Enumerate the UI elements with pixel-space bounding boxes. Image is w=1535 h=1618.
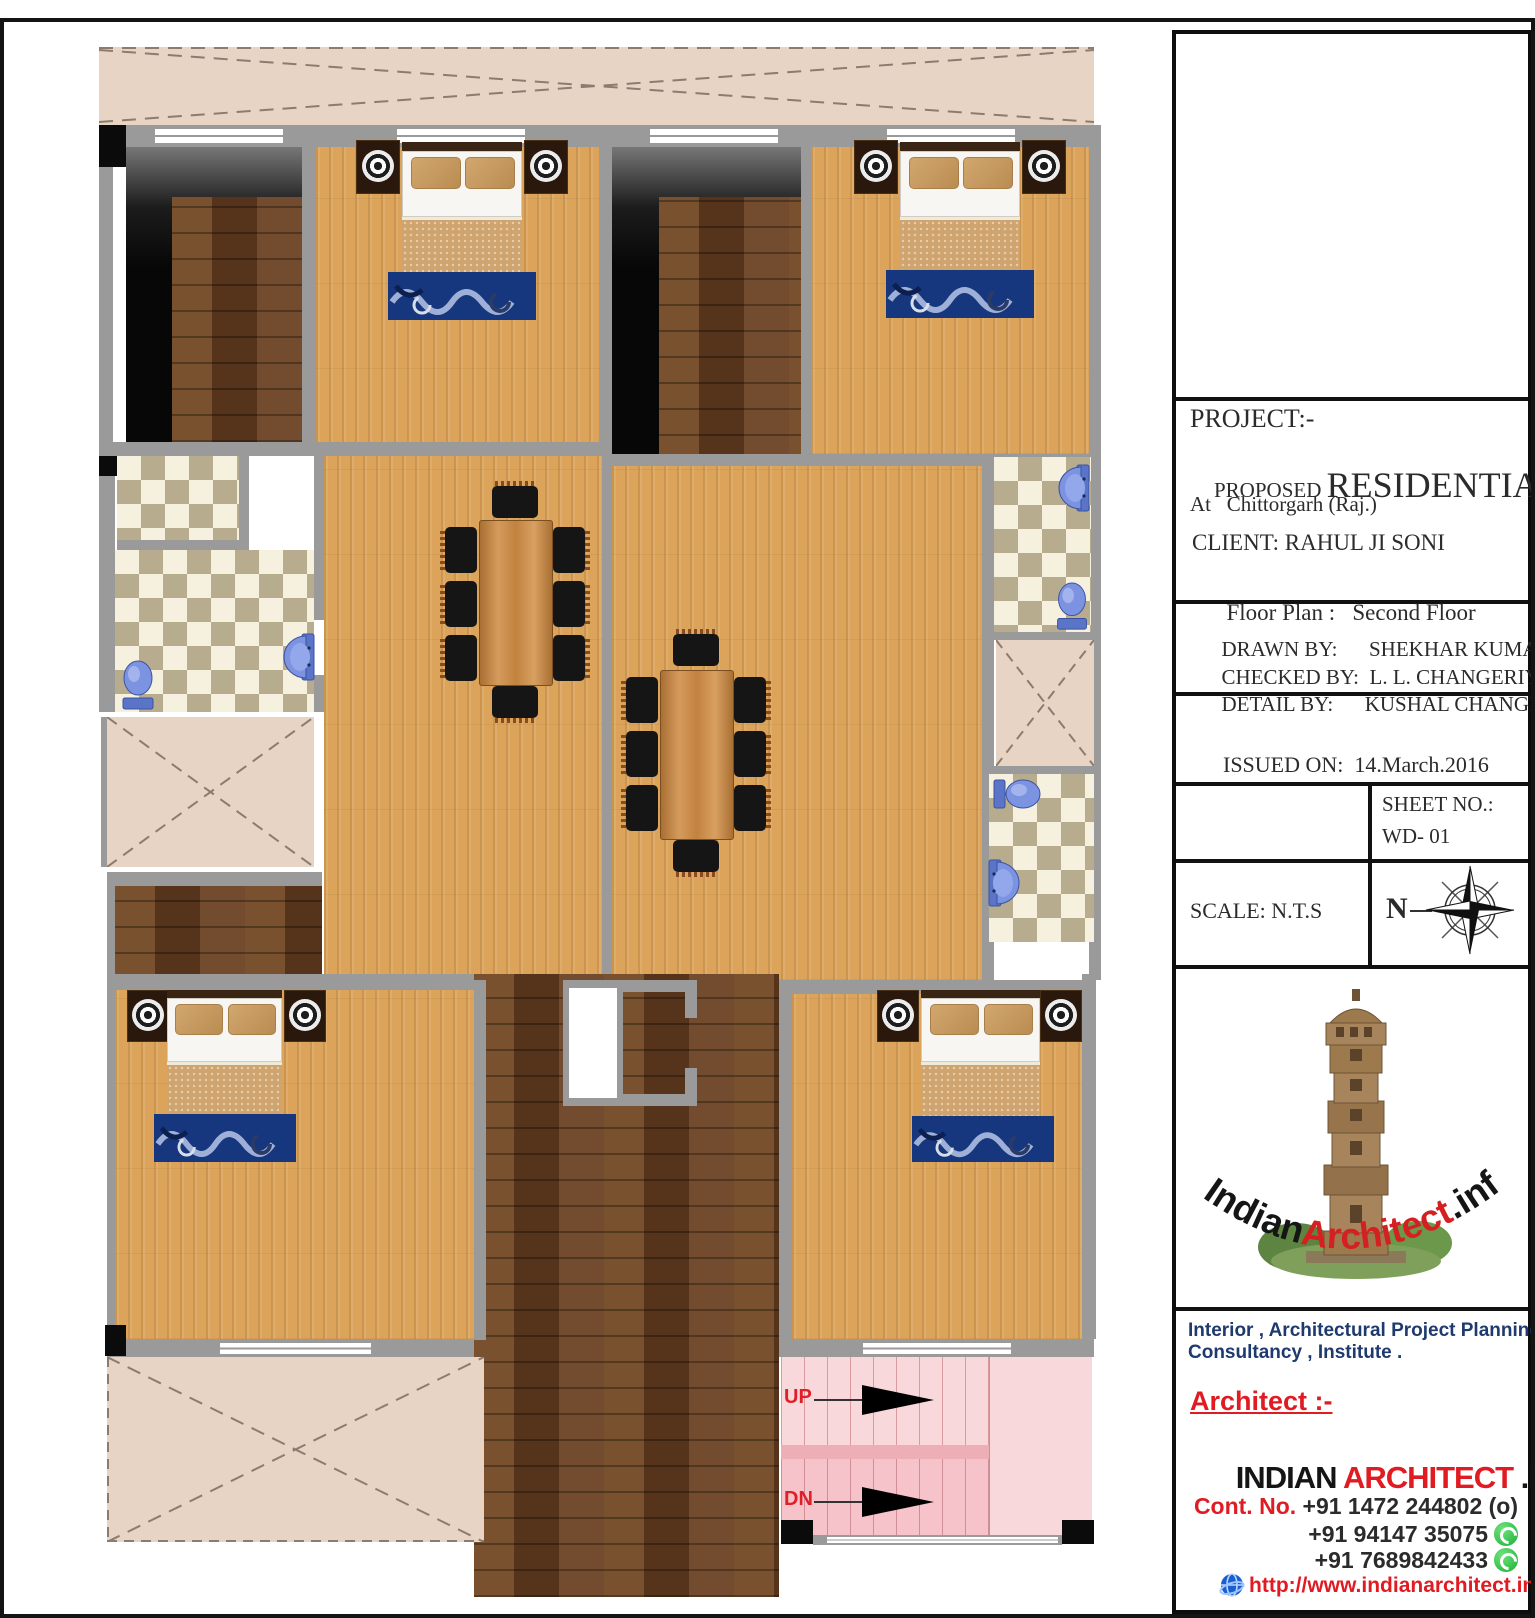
dining-table — [660, 670, 734, 840]
title-block: PROJECT:- PROPOSED RESIDENTIAL At Chitto… — [1172, 30, 1532, 1614]
balcony-bottom-left — [107, 1357, 484, 1542]
table-lamp-icon — [289, 999, 321, 1031]
detail-by-value: KUSHAL CHANGERIYA — [1365, 692, 1535, 716]
nightstand — [854, 140, 898, 194]
corridor-top-left-floor — [172, 197, 314, 442]
rug — [154, 1114, 296, 1162]
bathroom-left-small — [117, 456, 239, 540]
logo-text-indian: Indian — [1197, 1170, 1308, 1251]
compass-icon — [1424, 864, 1516, 956]
balcony-right — [996, 640, 1094, 766]
scale-value: SCALE: N.T.S — [1190, 898, 1322, 924]
wall — [474, 980, 486, 1340]
rug — [388, 272, 536, 320]
wall — [599, 147, 612, 462]
divider — [1176, 397, 1528, 401]
rug — [912, 1116, 1054, 1162]
table-lamp-icon — [362, 150, 394, 182]
nightstand — [524, 140, 568, 194]
wall — [117, 540, 247, 550]
dining-chair — [553, 635, 585, 681]
wall — [107, 872, 322, 886]
wall — [685, 980, 697, 1018]
dining-chair — [492, 486, 538, 518]
nightstand — [1040, 990, 1082, 1042]
table-lamp-icon — [1028, 150, 1060, 182]
wall-corner-block — [99, 125, 126, 167]
wall-corner-block — [781, 1520, 813, 1544]
nightstand — [356, 140, 400, 194]
wall — [302, 147, 316, 454]
stair-direction-line — [814, 1501, 864, 1503]
toilet-icon — [992, 774, 1044, 814]
stair-direction-line — [814, 1399, 864, 1401]
divider — [1176, 859, 1528, 863]
sheet-no-value: WD- 01 — [1382, 824, 1450, 849]
nightstand — [127, 990, 169, 1042]
project-location: At Chittorgarh (Raj.) — [1190, 492, 1377, 517]
washbasin-icon — [276, 632, 316, 682]
email-row: info@.indianarchitect.info/ — [1184, 1578, 1535, 1618]
stair-hall — [474, 974, 779, 1597]
dashed-x-lines — [99, 47, 1094, 125]
dining-chair — [553, 527, 585, 573]
toilet-icon — [118, 660, 158, 712]
stair-down-arrow-icon — [862, 1487, 934, 1517]
window — [649, 128, 779, 144]
dining-chair — [626, 731, 658, 777]
dining-chair — [445, 635, 477, 681]
issued-on-label: ISSUED ON: — [1223, 752, 1354, 777]
window — [154, 128, 284, 144]
nightstand — [1022, 140, 1066, 194]
wall — [99, 442, 602, 456]
floor-plan: UP DN — [4, 22, 1104, 1618]
dining-chair — [492, 686, 538, 718]
project-label: PROJECT:- — [1190, 404, 1314, 434]
double-bed — [900, 142, 1020, 270]
divider — [1176, 965, 1528, 969]
wall-corner-block — [1062, 1520, 1094, 1544]
table-lamp-icon — [530, 150, 562, 182]
detail-by-label: DETAIL BY: — [1222, 692, 1365, 716]
exterior-wall-left — [99, 167, 113, 442]
nightstand — [284, 990, 326, 1042]
chajja-projection — [99, 47, 1094, 125]
exterior-wall-left — [107, 886, 115, 1339]
dashed-x-lines — [996, 640, 1094, 766]
balcony-left — [107, 717, 314, 867]
washbasin-icon — [987, 858, 1027, 908]
wall — [994, 766, 1094, 774]
email-icon — [1227, 1613, 1257, 1618]
dining-table — [479, 520, 553, 686]
exterior-wall-right — [1082, 974, 1096, 1339]
client: CLIENT: RAHUL JI SONI — [1192, 530, 1445, 556]
wall — [239, 456, 249, 550]
divider — [1368, 782, 1372, 965]
window — [826, 1536, 1059, 1544]
stair-landing — [989, 1357, 1092, 1535]
corridor-left — [115, 886, 322, 980]
drawing-sheet: UP DN PROJECT:- — [0, 18, 1535, 1618]
double-bed — [167, 990, 282, 1116]
brand-info: .INFO — [1521, 1460, 1535, 1495]
table-lamp-icon — [882, 999, 914, 1031]
wall-corner-block — [105, 1325, 126, 1356]
washbasin-icon — [1051, 463, 1091, 513]
wall — [602, 454, 612, 980]
window — [862, 1342, 1012, 1355]
table-lamp-icon — [132, 999, 164, 1031]
wall — [994, 632, 1094, 640]
dining-chair — [445, 527, 477, 573]
stair-up-arrow-icon — [862, 1385, 934, 1415]
dining-chair — [734, 785, 766, 831]
email-link[interactable]: info@.indianarchitect.info/ — [1261, 1609, 1535, 1618]
nightstand — [877, 990, 919, 1042]
double-bed — [921, 990, 1040, 1116]
compass-north-letter: N — [1386, 892, 1408, 926]
dining-chair — [445, 581, 477, 627]
table-lamp-icon — [860, 150, 892, 182]
dashed-x-lines — [107, 1357, 484, 1542]
stairs-dn-label: DN — [784, 1488, 813, 1511]
services-line: Consultancy , Institute . — [1188, 1342, 1402, 1364]
toilet-icon — [1052, 582, 1092, 632]
dining-chair — [673, 634, 719, 666]
exterior-wall-left — [99, 442, 115, 712]
dining-chair — [734, 677, 766, 723]
company-logo-text: IndianArchitect.info — [1194, 1139, 1518, 1304]
services-line: Interior , Architectural Project Plannin… — [1188, 1320, 1535, 1342]
stairs-up-label: UP — [784, 1386, 812, 1409]
logo-text-architect: Architect — [1299, 1190, 1459, 1256]
stair-mid-landing — [781, 1445, 989, 1459]
dining-chair — [626, 785, 658, 831]
wall — [779, 980, 792, 1340]
dining-chair — [673, 840, 719, 872]
dining-chair — [734, 731, 766, 777]
sheet-no-label: SHEET NO.: — [1382, 792, 1494, 817]
corridor-top-middle-floor — [659, 197, 802, 462]
rug — [886, 270, 1034, 318]
issued-on-value: 14.March.2016 — [1354, 752, 1488, 777]
wall — [685, 1068, 697, 1106]
duct-shaft — [569, 988, 617, 1098]
dining-chair — [553, 581, 585, 627]
svg-text:IndianArchitect.info: IndianArchitect.info — [1194, 1139, 1507, 1257]
dining-chair — [626, 677, 658, 723]
dashed-x-lines — [107, 717, 314, 867]
architect-label: Architect :- — [1190, 1386, 1333, 1417]
window — [219, 1342, 372, 1355]
double-bed — [402, 142, 522, 270]
table-lamp-icon — [1045, 999, 1077, 1031]
wall — [801, 147, 811, 462]
